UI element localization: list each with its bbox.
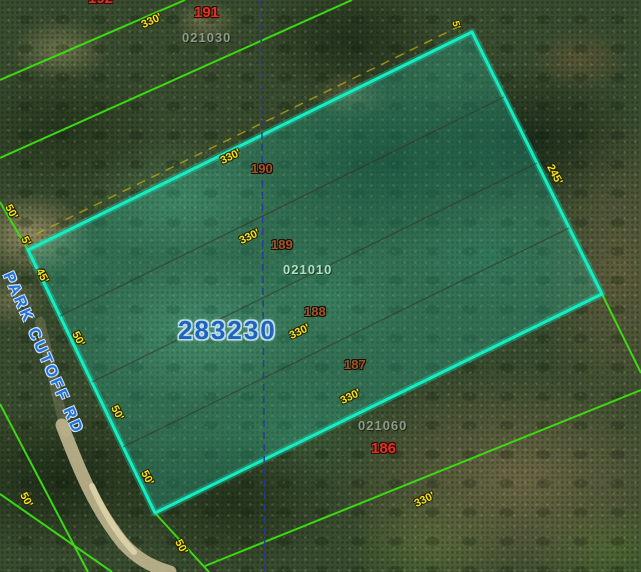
selected-parcel-number: 283230 [178, 317, 277, 343]
lot-number-190: 190 [251, 162, 273, 175]
map-viewport[interactable]: 192 191 021030 330' 5' 245' 190 330' 189… [0, 0, 641, 572]
alt-key-021010: 021010 [283, 263, 332, 276]
lot-number-191: 191 [194, 5, 219, 20]
alt-key-021060: 021060 [358, 419, 407, 432]
parcel-line [602, 294, 641, 373]
lot-number-187: 187 [344, 358, 366, 371]
lot-number-192-partial: 192 [88, 0, 113, 6]
lot-number-189: 189 [271, 238, 293, 251]
alt-key-021030: 021030 [182, 31, 231, 44]
parcel-overlay [0, 0, 641, 572]
lot-number-186: 186 [371, 441, 396, 456]
lot-number-188: 188 [304, 305, 326, 318]
